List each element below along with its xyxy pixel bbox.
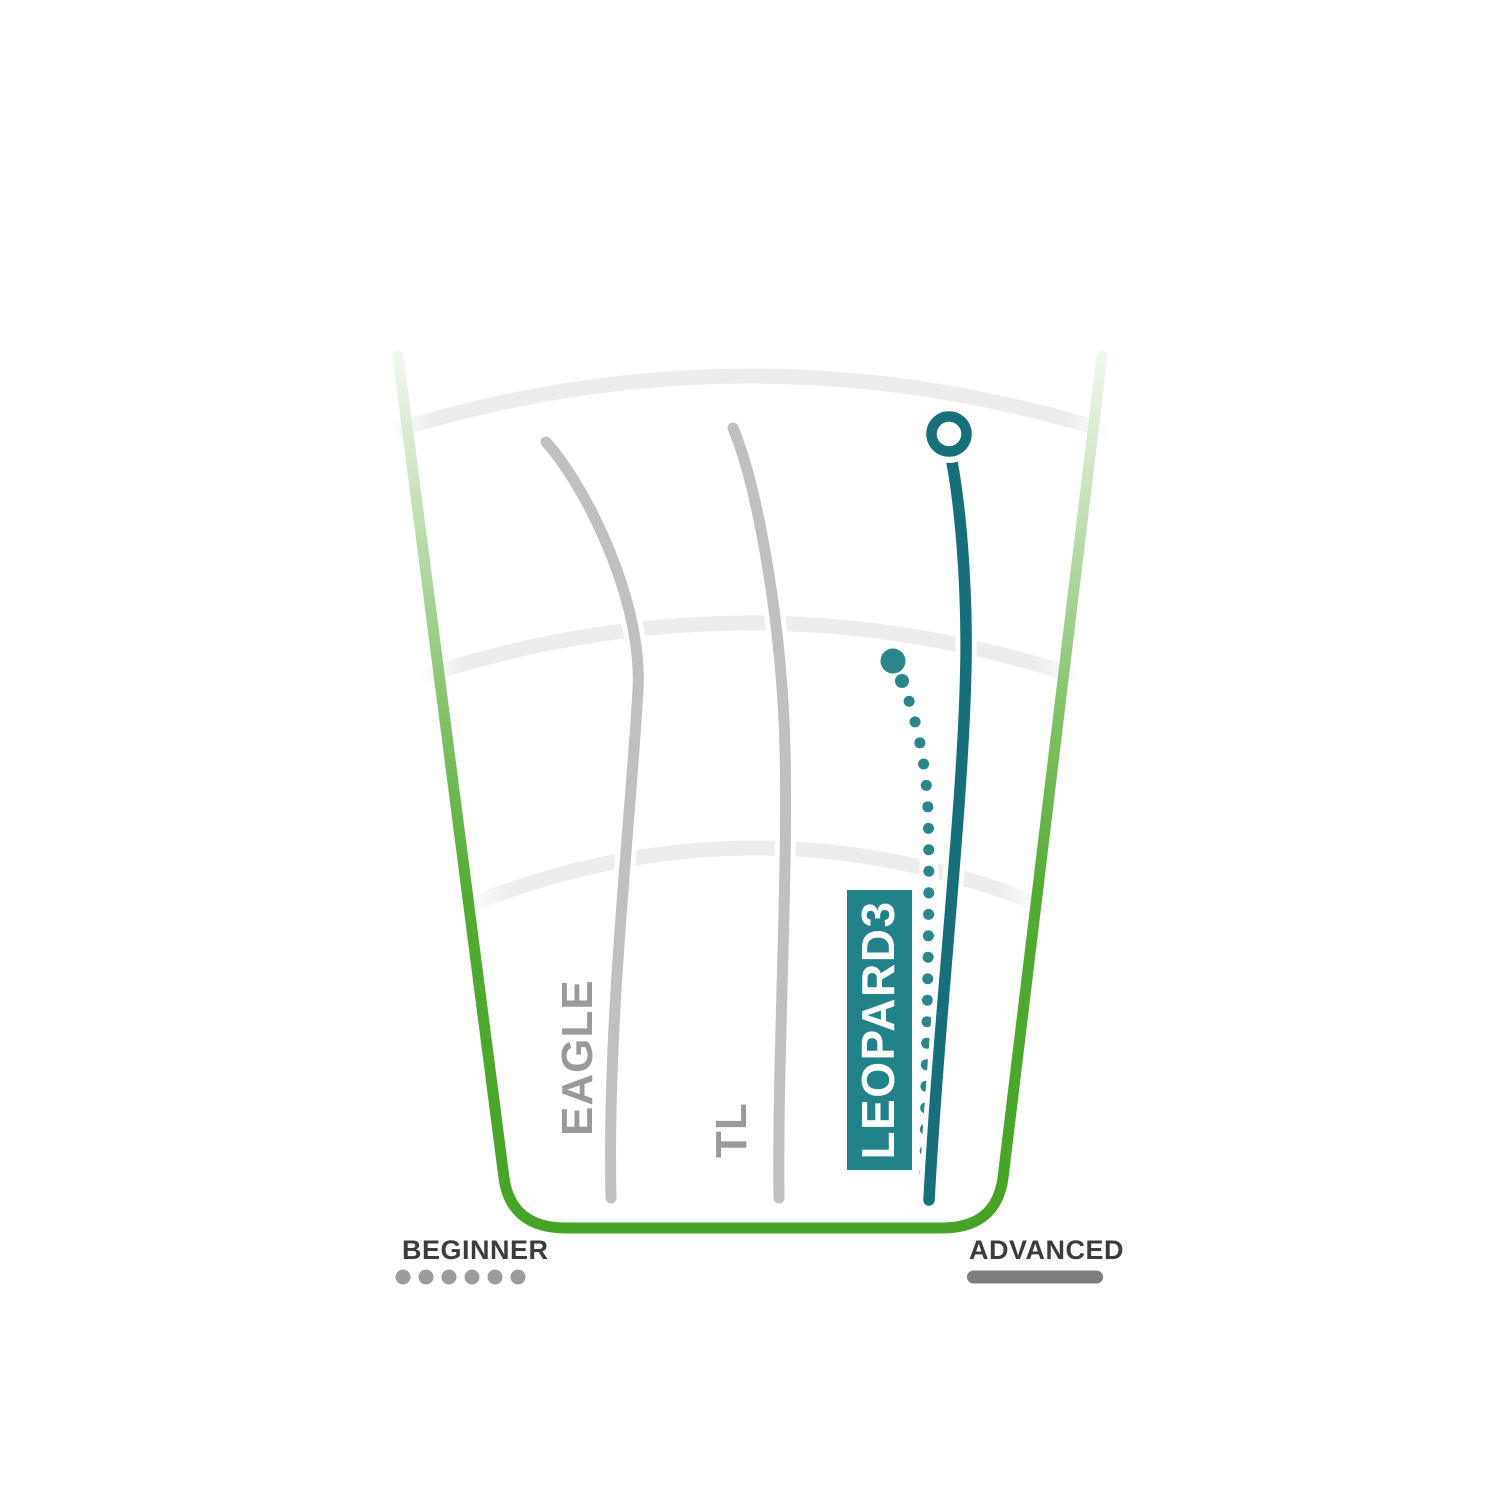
flight-chart: EAGLE TL LEOPARD3 BEGINNER ADVANCED	[0, 0, 1500, 1500]
beginner-dot	[488, 1270, 503, 1285]
beginner-label: BEGINNER	[402, 1235, 549, 1265]
distance-arc-mid	[418, 623, 1082, 678]
beginner-dot	[465, 1270, 480, 1285]
beginner-dots-icon	[396, 1270, 526, 1285]
flight-chart-canvas: EAGLE TL LEOPARD3 BEGINNER ADVANCED	[0, 0, 1500, 1500]
landing-marker-circle-icon	[932, 417, 967, 452]
eagle-label: EAGLE	[553, 979, 602, 1136]
distance-arc-far	[390, 376, 1110, 432]
advanced-bar-icon	[967, 1271, 1103, 1284]
leopard3-label: LEOPARD3	[852, 900, 904, 1159]
beginner-dot	[419, 1270, 434, 1285]
leopard3-dotted-start-dot	[881, 649, 906, 674]
advanced-label: ADVANCED	[969, 1235, 1124, 1265]
beginner-dot	[442, 1270, 457, 1285]
tl-label: TL	[707, 1102, 756, 1158]
leopard3-dotted-second-dot	[895, 674, 909, 688]
beginner-dot	[396, 1270, 411, 1285]
beginner-dot	[511, 1270, 526, 1285]
